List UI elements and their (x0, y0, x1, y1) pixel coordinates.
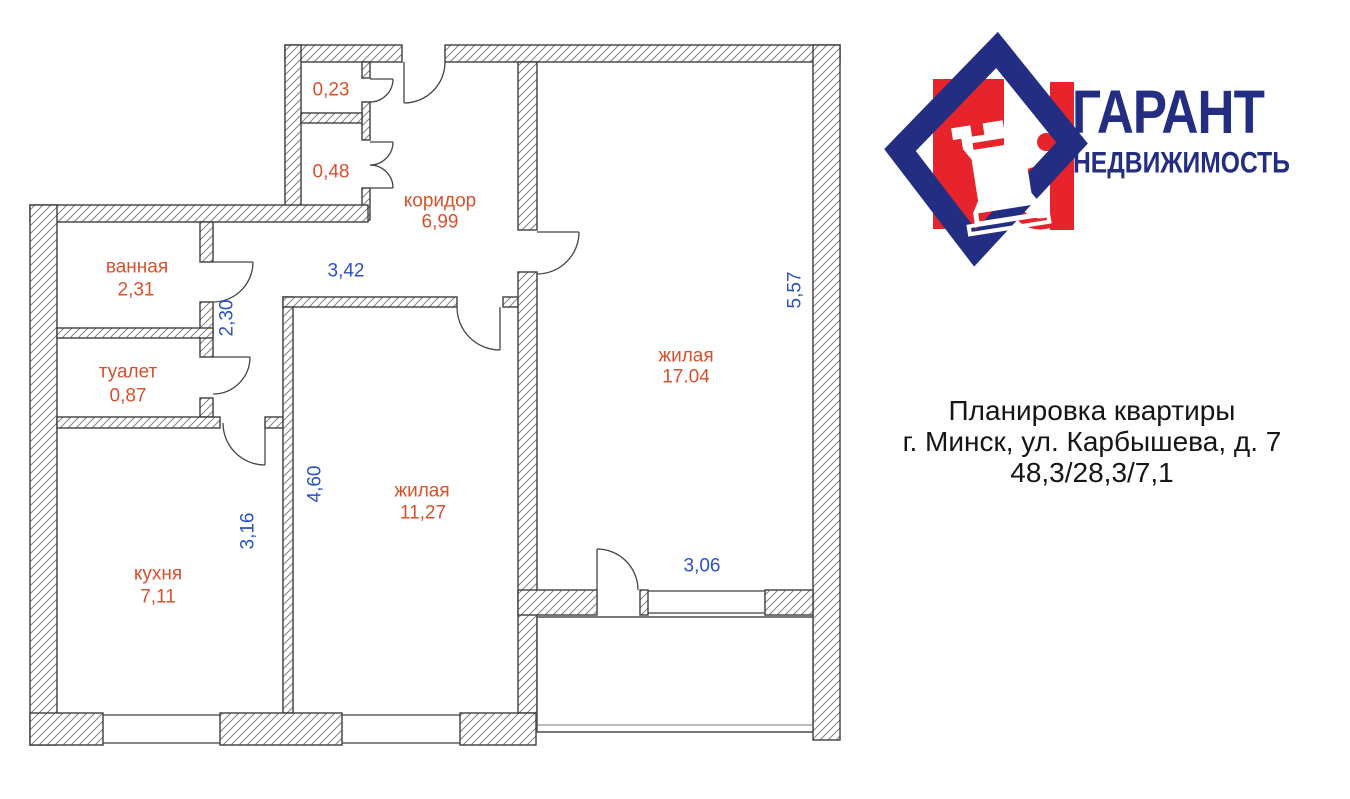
wall-segment (283, 297, 457, 307)
plan-caption: Планировка квартиры г. Минск, ул. Карбыш… (892, 395, 1292, 488)
floor-plan-page: ♜ 0,23 0,48 коридор 6,99 ванная 2,31 туа… (0, 0, 1350, 799)
kitchen-window (103, 715, 220, 743)
toilet-door (213, 357, 250, 394)
wall-segment (200, 398, 213, 417)
room-area-kitchen: 7,11 (140, 588, 176, 607)
wall-segment (200, 222, 213, 262)
room-name-bathroom: ванная (106, 258, 168, 277)
dim-living-small-height: 4,60 (306, 466, 325, 503)
wall-segment (445, 45, 840, 62)
room-name-toilet: туалет (99, 363, 158, 382)
wall-segment (640, 590, 648, 615)
room-name-living-small: жилая (394, 482, 449, 501)
wall-segment (518, 590, 597, 615)
balcony (537, 617, 813, 732)
brand-subtitle: НЕДВИЖИМОСТЬ (1073, 146, 1290, 180)
caption-title: Планировка квартиры (892, 395, 1292, 426)
closet-top-door (370, 79, 393, 102)
living-small-window (342, 715, 460, 743)
living-large-window (648, 591, 765, 613)
wall-segment (518, 62, 537, 230)
wall-segment (283, 297, 293, 713)
wall-segment (265, 417, 283, 428)
wall-segment (57, 328, 213, 338)
room-area-closet-top: 0,23 (313, 81, 350, 100)
living-small-door (457, 307, 500, 350)
wall-segment (30, 205, 57, 745)
room-area-toilet: 0,87 (110, 387, 147, 406)
wall-segment (518, 272, 537, 713)
wall-segment (220, 713, 342, 745)
wall-segment (765, 590, 813, 615)
wall-segment (362, 102, 370, 140)
room-area-bathroom: 2,31 (118, 281, 155, 300)
entrance-door (404, 62, 445, 103)
kitchen-door (223, 423, 265, 465)
dim-living-large-width: 3,06 (684, 557, 721, 576)
balcony-door (597, 549, 638, 590)
dim-living-large-height: 5,57 (786, 272, 805, 309)
wall-segment (285, 45, 402, 62)
caption-address: г. Минск, ул. Карбышева, д. 7 (892, 426, 1292, 457)
wall-segment (57, 417, 220, 428)
brand-logo: ♜ (900, 50, 1082, 276)
living-large-door (537, 232, 579, 274)
room-name-kitchen: кухня (134, 565, 182, 584)
wall-segment (285, 45, 301, 220)
room-name-corridor: коридор (404, 192, 477, 211)
dim-hall-height: 2,30 (218, 300, 237, 337)
rook-icon: ♜ (922, 83, 1082, 276)
wall-segment (362, 62, 370, 78)
wall-segment (301, 113, 362, 123)
bathroom-door (213, 262, 253, 302)
wall-segment (30, 205, 368, 222)
room-area-living-small: 11,27 (400, 504, 446, 523)
room-area-living-large: 17.04 (662, 368, 710, 387)
dim-kitchen-height: 3,16 (239, 513, 258, 550)
room-area-closet-bottom: 0,48 (313, 163, 350, 182)
brand-title: ГАРАНТ (1072, 76, 1264, 148)
caption-areas: 48,3/28,3/7,1 (892, 457, 1292, 488)
wall-segment (30, 713, 103, 745)
dim-hall-width: 3,42 (328, 262, 365, 281)
room-name-living-large: жилая (658, 347, 713, 366)
wall-segment (503, 297, 518, 307)
wall-segment (813, 45, 840, 740)
closet-bottom-double-door (370, 142, 393, 188)
wall-segment (460, 713, 536, 745)
room-area-corridor: 6,99 (422, 213, 459, 232)
